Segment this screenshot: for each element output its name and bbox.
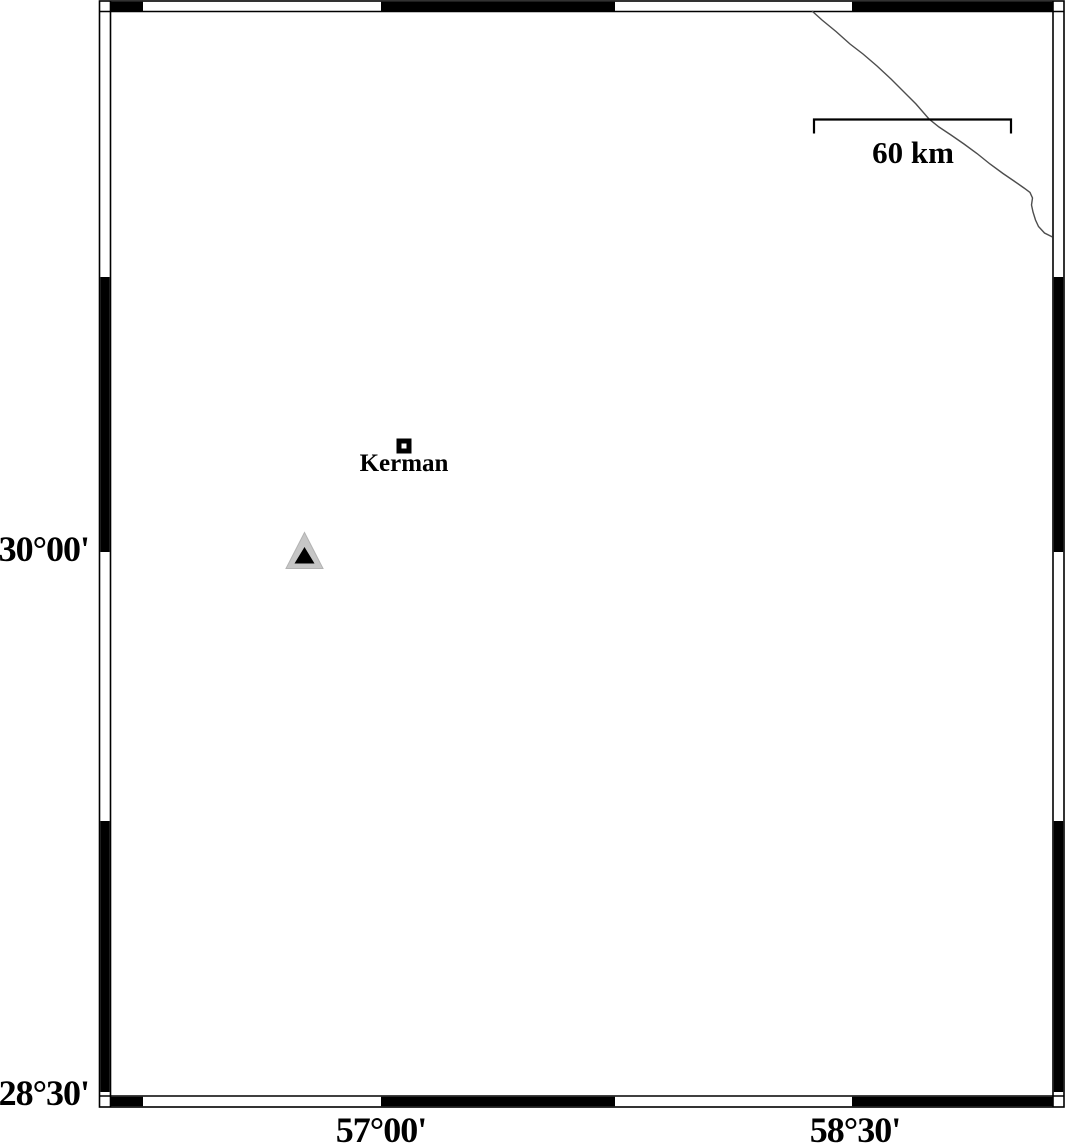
scale-bar-label: 60 km: [872, 135, 954, 170]
lon-label-57-00: 57°00': [336, 1110, 426, 1145]
frame-tick-segment-bottom-3: [852, 1097, 1053, 1106]
city-label: Kerman: [360, 450, 449, 477]
map-canvas: 60 km Kerman 30°00' 28°30' 57°00' 58°30': [0, 0, 1066, 1145]
frame-tick-segment-left-1: [100, 277, 109, 552]
frame-tick-segment-bottom-1: [111, 1097, 144, 1106]
frame-tick-segment-top-2: [381, 2, 615, 11]
map-background: [0, 0, 1066, 1145]
lat-label-28-30: 28°30': [0, 1073, 89, 1113]
frame-tick-segment-right-1: [1054, 277, 1063, 552]
frame-tick-segment-bottom-2: [381, 1097, 615, 1106]
frame-tick-segment-right-2: [1054, 821, 1063, 1092]
lon-label-58-30: 58°30': [810, 1110, 900, 1145]
frame-tick-segment-left-2: [100, 821, 109, 1092]
map-page: 60 km Kerman 30°00' 28°30' 57°00' 58°30': [0, 0, 1066, 1145]
frame-tick-segment-top-1: [111, 2, 144, 11]
frame-tick-segment-top-3: [852, 2, 1053, 11]
lat-label-30-00: 30°00': [0, 529, 89, 569]
